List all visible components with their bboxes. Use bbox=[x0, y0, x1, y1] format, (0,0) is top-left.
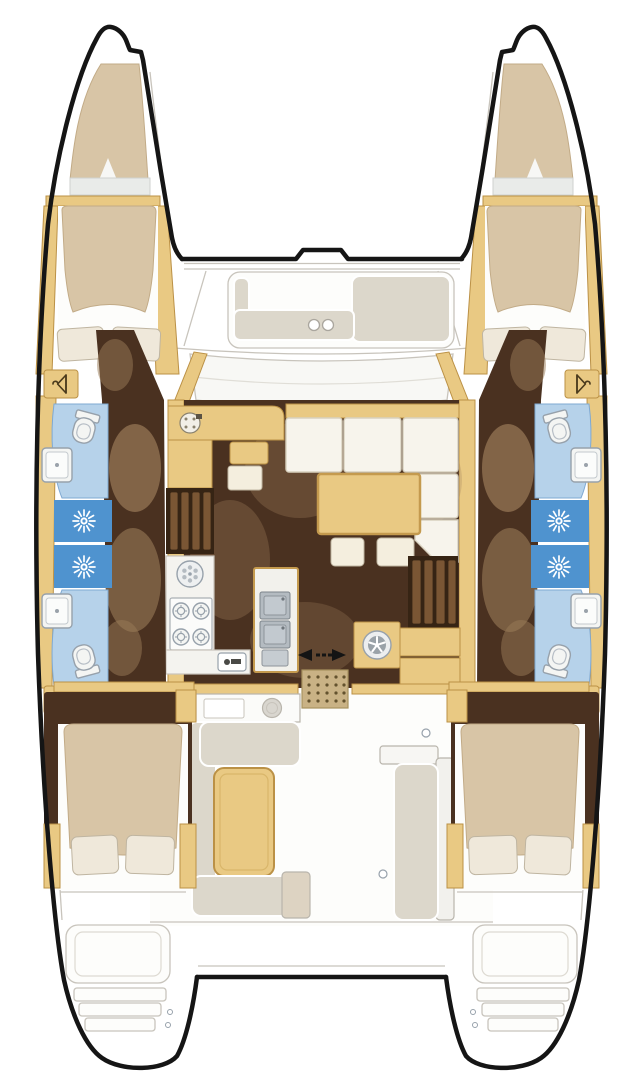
floorplan-page bbox=[0, 0, 643, 1080]
salon bbox=[166, 400, 475, 708]
starboard-cabinet bbox=[400, 628, 460, 656]
cup-holder-icon bbox=[323, 320, 334, 331]
faucet-icon bbox=[218, 653, 246, 671]
washer-porthole-icon bbox=[354, 622, 400, 668]
deck-fitting bbox=[422, 729, 430, 737]
nav-cabinet bbox=[168, 440, 212, 488]
cockpit-port-unit bbox=[196, 694, 300, 722]
cup-holder-icon bbox=[309, 320, 320, 331]
nav-seat bbox=[230, 442, 268, 464]
companionway-steps-starboard bbox=[408, 556, 458, 628]
bridgedeck bbox=[150, 264, 493, 967]
catamaran-floorplan bbox=[0, 0, 643, 1080]
settee-backrest bbox=[286, 404, 459, 418]
aft-bench-cushion bbox=[282, 872, 310, 918]
cockpit-sink-icon bbox=[263, 699, 282, 718]
salon-starboard-wall bbox=[459, 400, 475, 688]
starboard-cabinet bbox=[400, 658, 460, 684]
companionway-steps-port bbox=[166, 488, 214, 554]
forward-cockpit-seat bbox=[228, 272, 454, 348]
nav-stool bbox=[228, 466, 262, 490]
cockpit-starboard-unit bbox=[380, 746, 438, 764]
salon-aft-wall bbox=[184, 684, 298, 694]
stove-burners-icon bbox=[170, 598, 212, 650]
round-sink-icon bbox=[177, 561, 203, 587]
entry-mat bbox=[302, 670, 348, 708]
deck-fitting bbox=[379, 870, 387, 878]
cockpit-table bbox=[214, 768, 274, 876]
salon-aft-wall bbox=[352, 684, 459, 694]
stool bbox=[331, 538, 364, 566]
cockpit-forward-bench bbox=[200, 722, 300, 766]
cockpit-starboard-bench bbox=[394, 764, 438, 920]
galley-island bbox=[254, 568, 298, 672]
salon-table bbox=[318, 474, 420, 534]
